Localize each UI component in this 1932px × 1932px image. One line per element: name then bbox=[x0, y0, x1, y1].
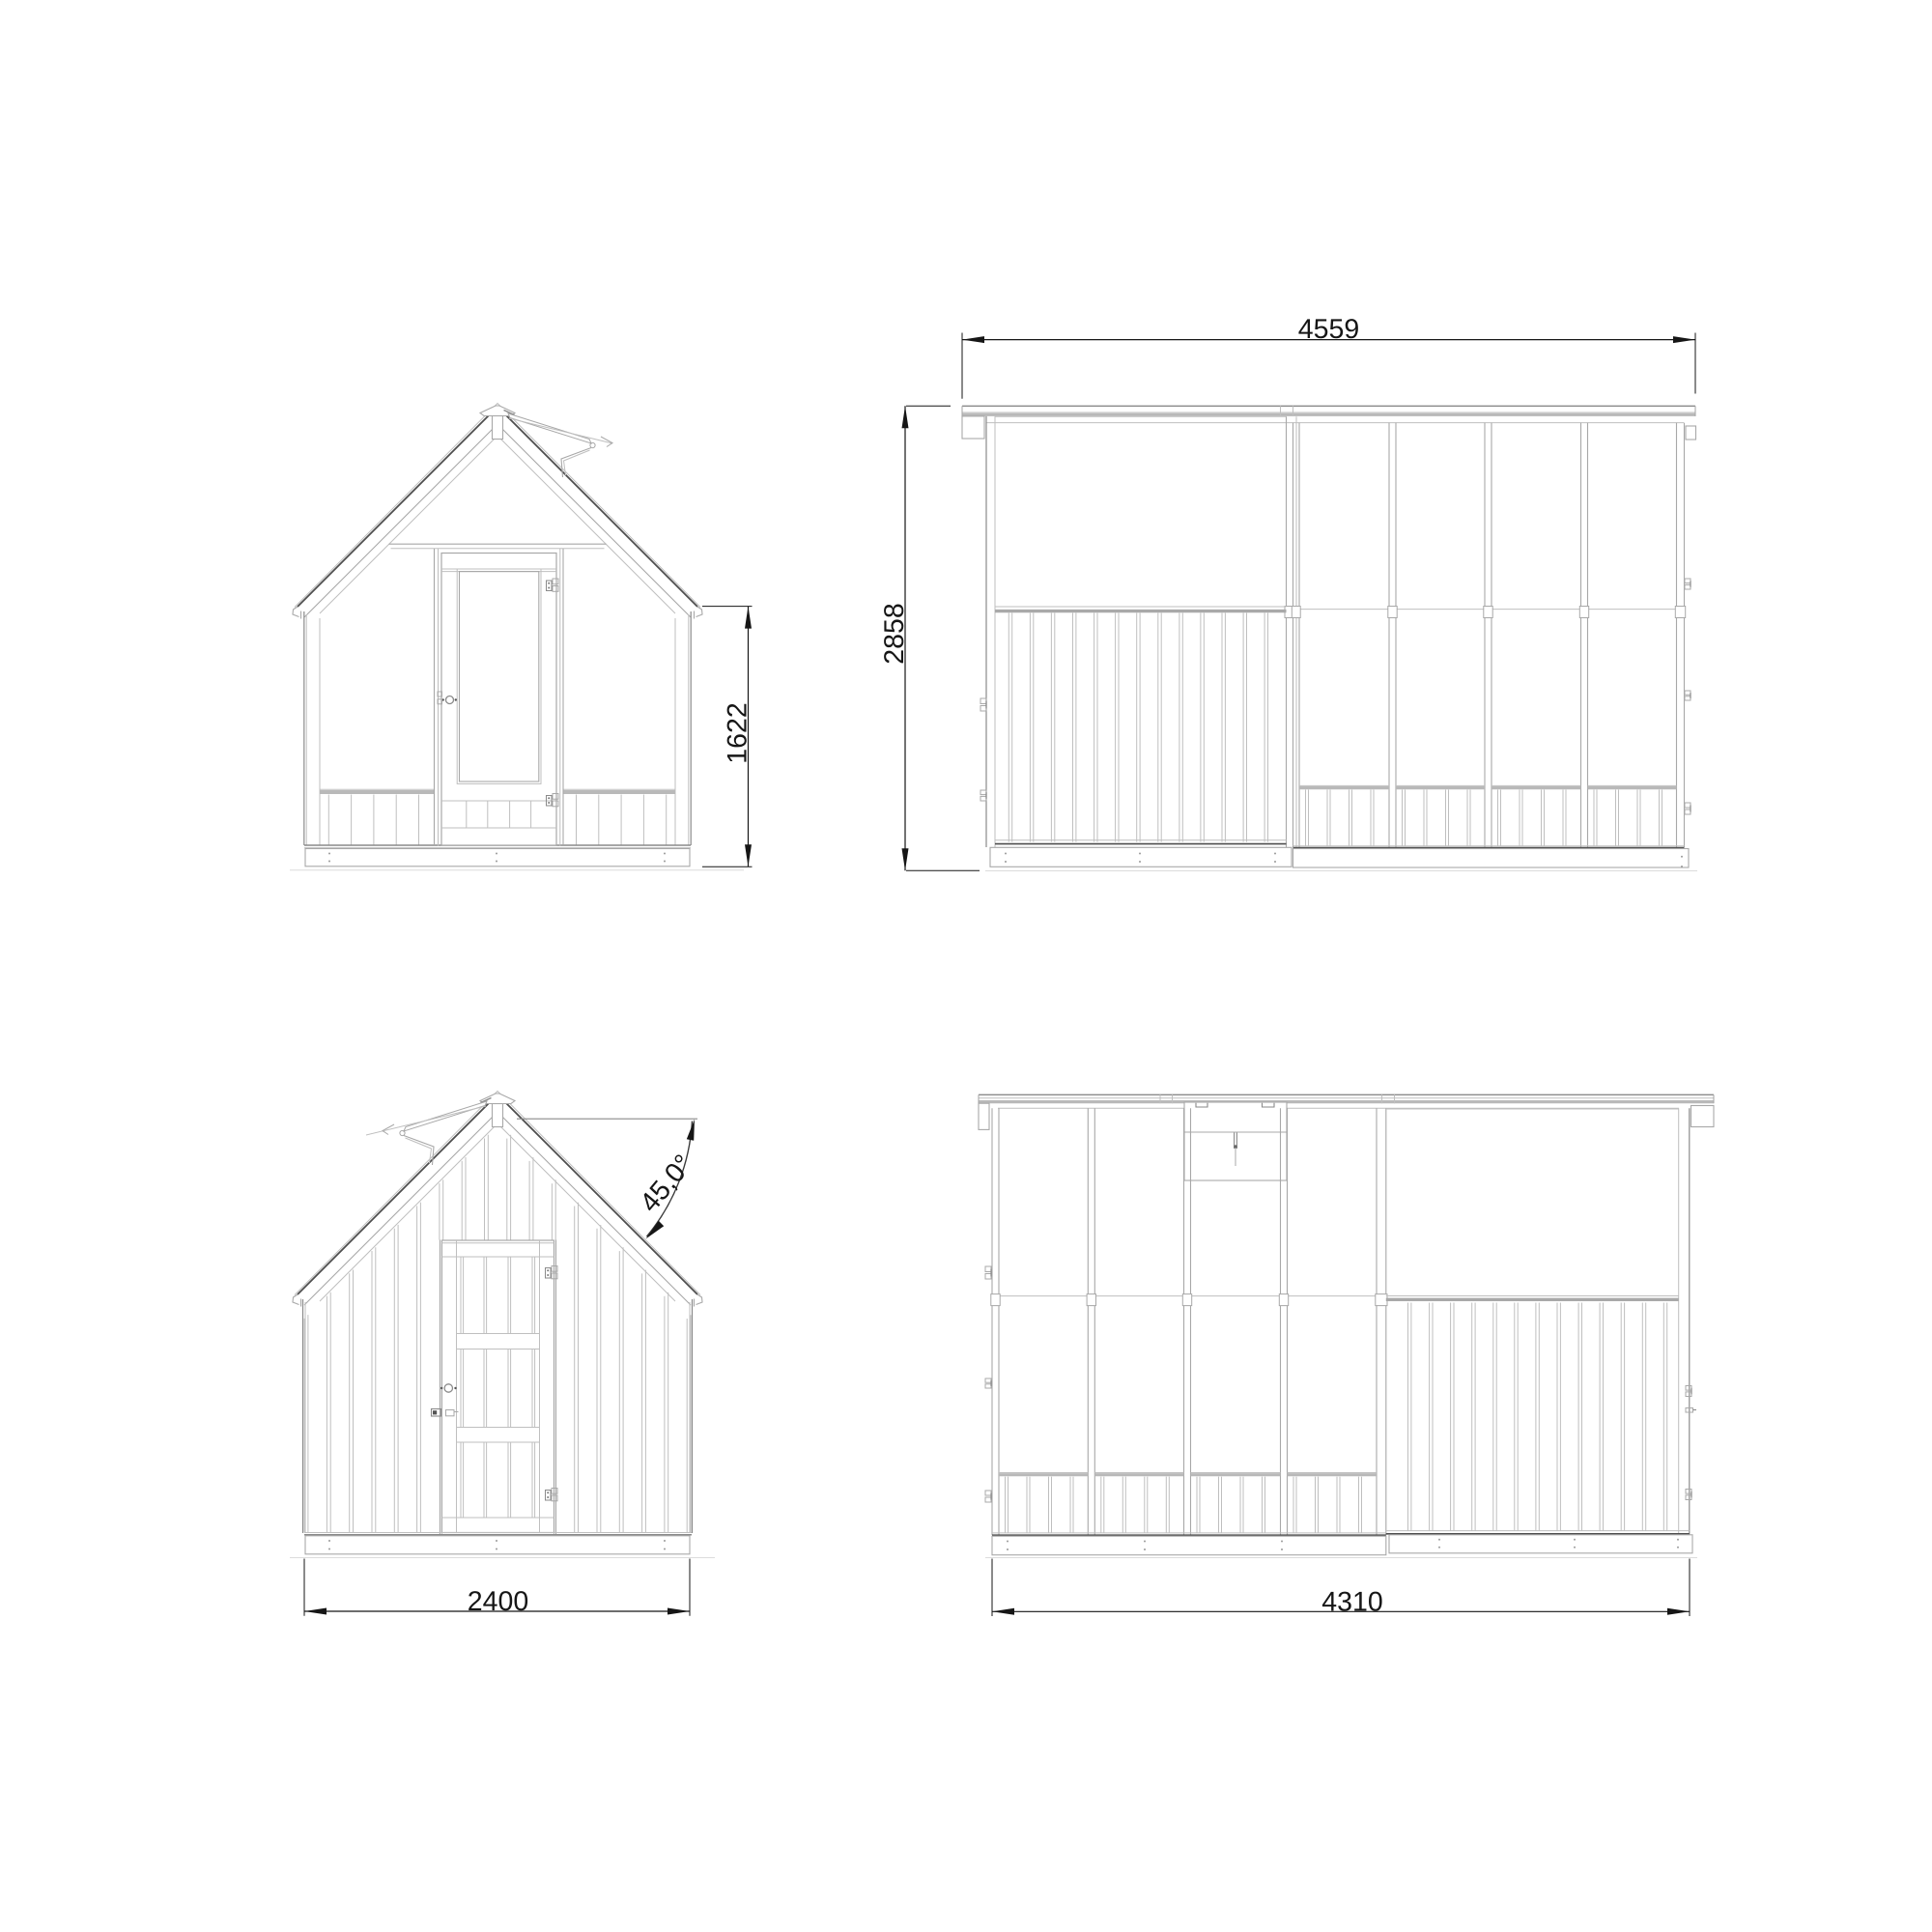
svg-text:4310: 4310 bbox=[1321, 1586, 1382, 1617]
svg-text:1622: 1622 bbox=[723, 702, 753, 763]
svg-text:2400: 2400 bbox=[468, 1586, 528, 1617]
svg-text:2858: 2858 bbox=[879, 603, 910, 664]
svg-text:4559: 4559 bbox=[1298, 314, 1359, 345]
